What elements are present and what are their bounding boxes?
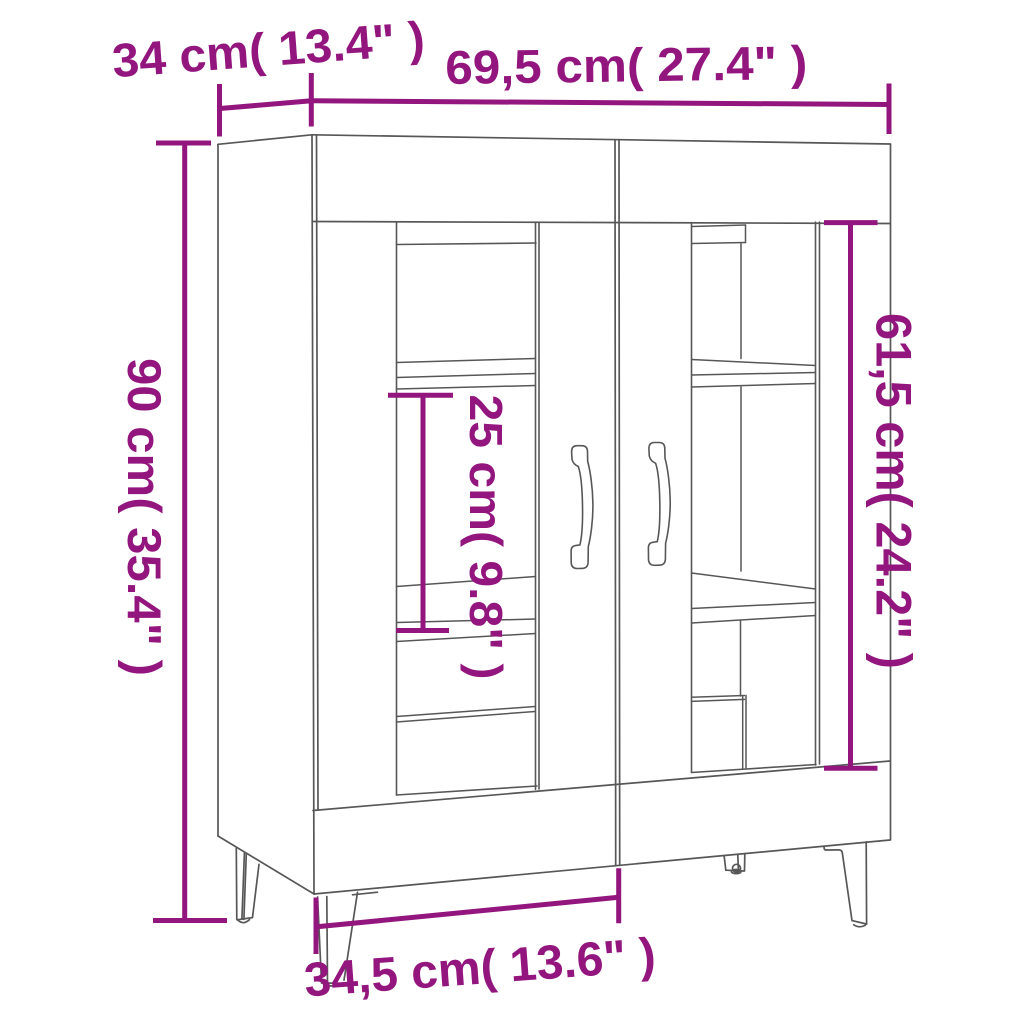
svg-text:90 cm( 35.4" ): 90 cm( 35.4" ) (118, 358, 171, 676)
svg-text:69,5 cm( 27.4" ): 69,5 cm( 27.4" ) (445, 37, 808, 95)
svg-text:25 cm( 9.8" ): 25 cm( 9.8" ) (460, 395, 512, 680)
svg-text:61,5 cm( 24.2" ): 61,5 cm( 24.2" ) (866, 313, 922, 669)
